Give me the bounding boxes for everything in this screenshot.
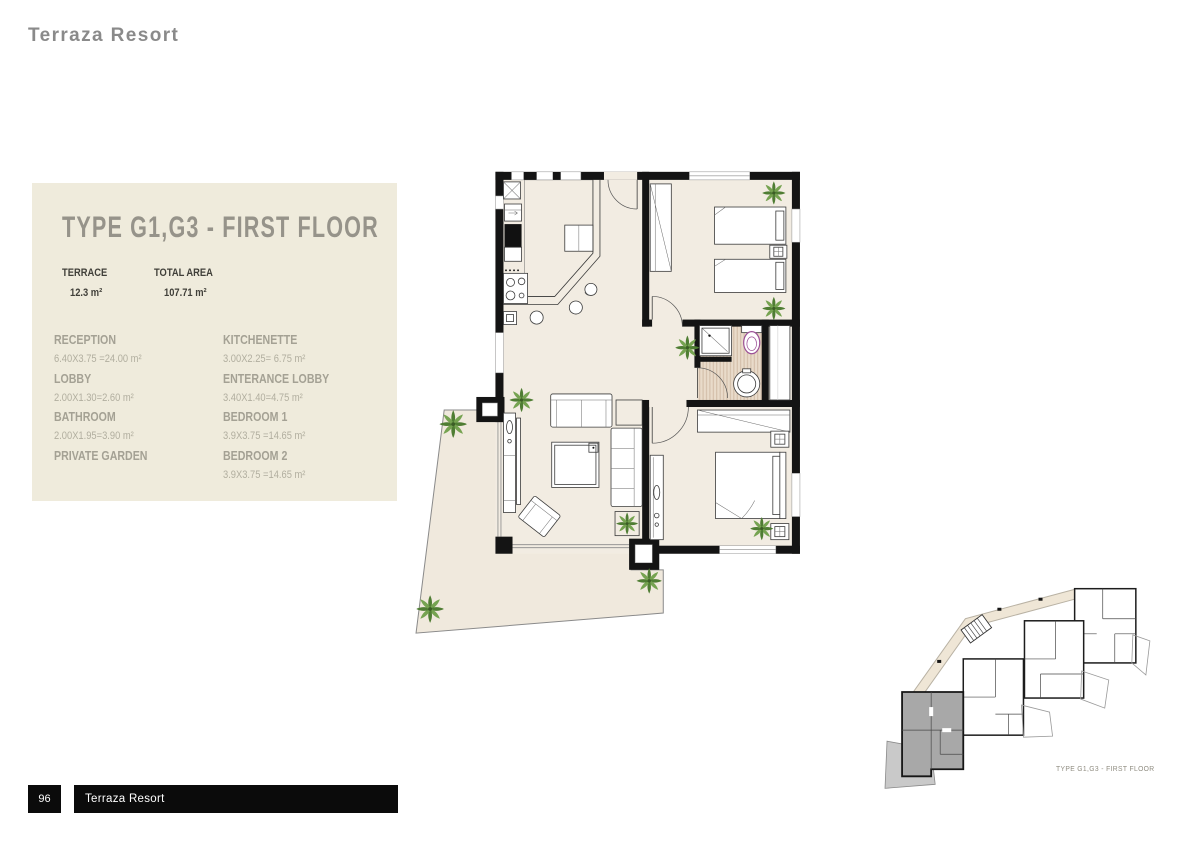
list-item: ENTERANCE LOBBY 3.40X1.40=4.75 m² bbox=[223, 370, 348, 409]
room-name: KITCHENETTE bbox=[223, 331, 297, 350]
key-plan-unit-a-highlighted bbox=[885, 692, 963, 788]
list-item: RECEPTION 6.40X3.75 =24.00 m² bbox=[54, 331, 164, 370]
room-name: BATHROOM bbox=[54, 408, 116, 427]
list-item: LOBBY 2.00X1.30=2.60 m² bbox=[54, 370, 164, 409]
terrace-summary: TERRACE 12.3 m² bbox=[62, 267, 115, 299]
terrace-label: TERRACE bbox=[62, 267, 107, 279]
room-name: RECEPTION bbox=[54, 331, 116, 350]
info-panel: TYPE G1,G3 - FIRST FLOOR TERRACE 12.3 m²… bbox=[32, 183, 397, 501]
total-area-label: TOTAL AREA bbox=[154, 267, 213, 279]
room-list-right: KITCHENETTE 3.00X2.25= 6.75 m² ENTERANCE… bbox=[223, 331, 348, 485]
room-dims: 6.40X3.75 =24.00 m² bbox=[54, 350, 142, 369]
plant-icon bbox=[416, 595, 444, 623]
footer-bar: Terraza Resort bbox=[74, 785, 398, 813]
key-plan-caption: TYPE G1,G3 - FIRST FLOOR bbox=[1056, 764, 1155, 773]
tv-unit bbox=[503, 413, 515, 512]
list-item: KITCHENETTE 3.00X2.25= 6.75 m² bbox=[223, 331, 348, 370]
room-name: LOBBY bbox=[54, 370, 91, 389]
list-item: BEDROOM 2 3.9X3.75 =14.65 m² bbox=[223, 447, 348, 486]
list-item: BATHROOM 2.00X1.95=3.90 m² bbox=[54, 408, 164, 447]
plant-icon bbox=[636, 568, 661, 593]
list-item: BEDROOM 1 3.9X3.75 =14.65 m² bbox=[223, 408, 348, 447]
page-number: 96 bbox=[28, 785, 61, 813]
footer-label: Terraza Resort bbox=[74, 793, 165, 805]
total-area-summary: TOTAL AREA 107.71 m² bbox=[154, 267, 223, 299]
plant-icon bbox=[616, 513, 638, 535]
room-name: BEDROOM 1 bbox=[223, 408, 287, 427]
plant-icon bbox=[675, 336, 699, 360]
bed bbox=[715, 207, 786, 244]
terrace-value: 12.3 m² bbox=[70, 287, 102, 299]
dresser bbox=[650, 455, 663, 539]
bed bbox=[715, 259, 786, 292]
list-item: PRIVATE GARDEN bbox=[54, 447, 164, 486]
bar-stool bbox=[585, 283, 597, 295]
room-dims: 3.40X1.40=4.75 m² bbox=[223, 389, 303, 408]
total-area-value: 107.71 m² bbox=[164, 287, 207, 299]
room-name: ENTERANCE LOBBY bbox=[223, 370, 329, 389]
coffee-table bbox=[552, 442, 599, 487]
plant-icon bbox=[762, 297, 785, 320]
key-plan-unit-d bbox=[1075, 589, 1150, 675]
room-name: BEDROOM 2 bbox=[223, 447, 287, 466]
room-name: PRIVATE GARDEN bbox=[54, 447, 147, 466]
plan-type-title: TYPE G1,G3 - FIRST FLOOR bbox=[62, 211, 379, 245]
room-dims: 3.9X3.75 =14.65 m² bbox=[223, 466, 305, 485]
floor-plan bbox=[408, 158, 810, 652]
room-dims: 2.00X1.95=3.90 m² bbox=[54, 427, 134, 446]
room-dims: 3.9X3.75 =14.65 m² bbox=[223, 427, 305, 446]
room-dims: 3.00X2.25= 6.75 m² bbox=[223, 350, 305, 369]
plant-icon bbox=[509, 388, 533, 412]
page-title: Terraza Resort bbox=[28, 25, 179, 47]
plant-icon bbox=[439, 410, 467, 438]
plant-icon bbox=[750, 517, 773, 540]
key-plan bbox=[880, 578, 1186, 792]
room-dims: 2.00X1.30=2.60 m² bbox=[54, 389, 134, 408]
stove-icon bbox=[503, 273, 527, 303]
plant-icon bbox=[762, 181, 785, 204]
sectional-sofa bbox=[611, 428, 642, 506]
room-list-left: RECEPTION 6.40X3.75 =24.00 m² LOBBY 2.00… bbox=[54, 331, 164, 485]
page: Terraza Resort TYPE G1,G3 - FIRST FLOOR … bbox=[0, 0, 1190, 841]
